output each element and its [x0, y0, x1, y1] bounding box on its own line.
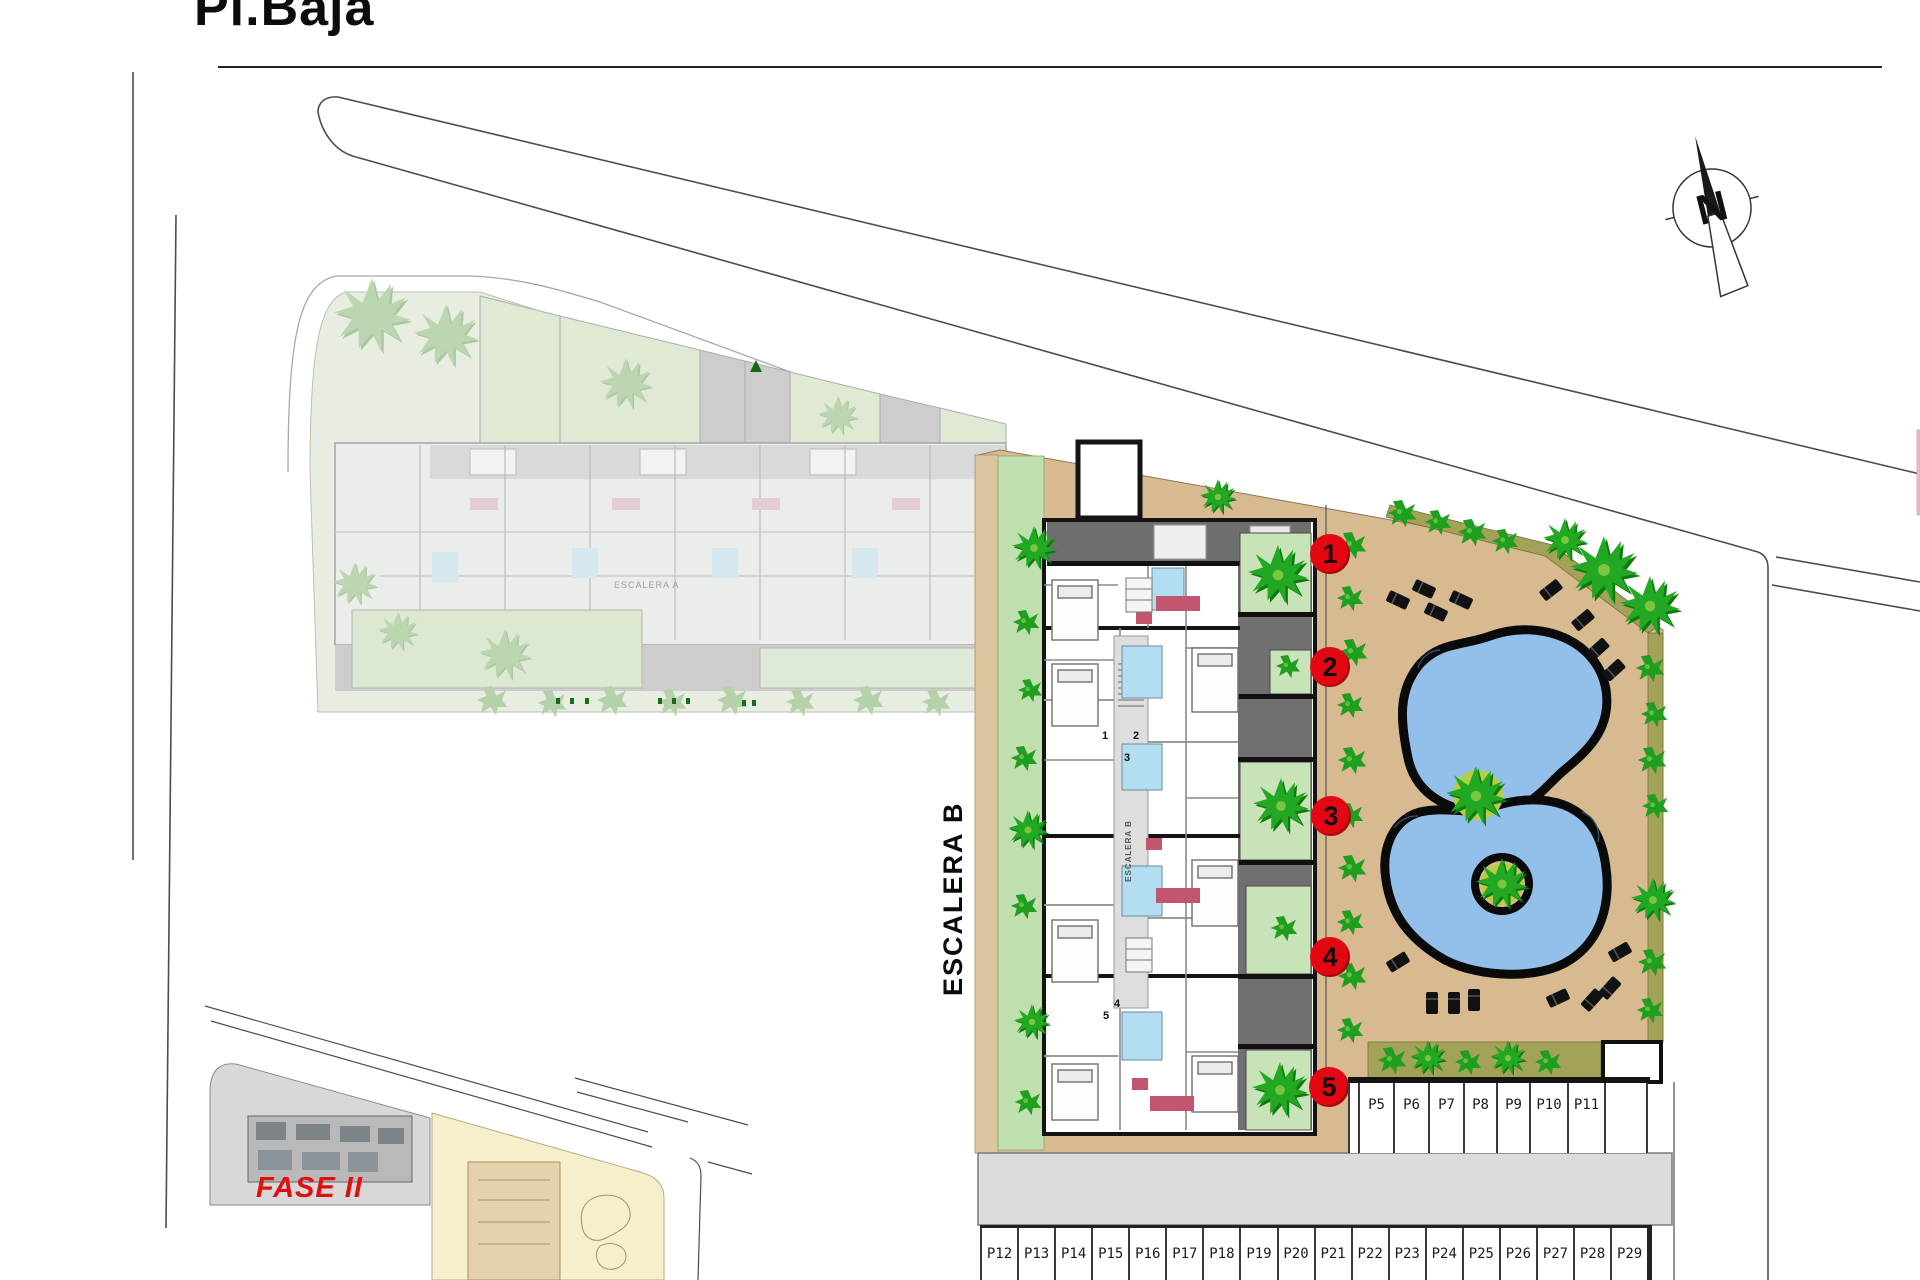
unit-marker-5[interactable]: 5 — [1309, 1067, 1349, 1107]
parking-stall: P16 — [1128, 1228, 1165, 1280]
parking-stall: P18 — [1202, 1228, 1239, 1280]
parking-row-lower: P12 P13 P14 P15 P16 P17 P18 P19 P20 P21 … — [980, 1225, 1652, 1280]
parking-stall — [1348, 1083, 1358, 1153]
faded-building — [335, 443, 1006, 691]
stair-b-label: ESCALERA B — [937, 846, 969, 996]
title-rule — [218, 66, 1882, 68]
parking-stall: P20 — [1277, 1228, 1314, 1280]
parking-stall: P5 — [1358, 1083, 1393, 1153]
parking-stall: P14 — [1054, 1228, 1091, 1280]
parking-stall: P21 — [1314, 1228, 1351, 1280]
parking-stall: P26 — [1499, 1228, 1536, 1280]
parking-stall: P19 — [1239, 1228, 1276, 1280]
unit-marker-4[interactable]: 4 — [1310, 937, 1350, 977]
parking-stall: P25 — [1462, 1228, 1499, 1280]
parking-stall: P15 — [1091, 1228, 1128, 1280]
page-title: Pl.Baja — [194, 0, 374, 38]
parking-stall: P9 — [1496, 1083, 1529, 1153]
compass-north-label: N — [1691, 181, 1732, 234]
north-compass: N — [1648, 125, 1780, 305]
plan-number-4: 4 — [1114, 998, 1120, 1010]
unit-marker-1[interactable]: 1 — [1310, 534, 1350, 574]
entrance-lobby — [1078, 442, 1140, 518]
parking-stall: P17 — [1165, 1228, 1202, 1280]
plan-number-5: 5 — [1103, 1010, 1109, 1022]
parking-stall: P28 — [1573, 1228, 1610, 1280]
minimap — [205, 1006, 752, 1280]
parking-stall — [1604, 1083, 1648, 1153]
unit-marker-3[interactable]: 3 — [1311, 796, 1351, 836]
parking-stall: P8 — [1463, 1083, 1496, 1153]
site-plan-canvas: N Pl.Baja ESCALERA B ESCALERA B ESCALERA… — [0, 0, 1920, 1280]
parking-stall: P22 — [1351, 1228, 1388, 1280]
parking-stall: P12 — [980, 1228, 1017, 1280]
stair-b-small-label: ESCALERA B — [1124, 820, 1134, 882]
parking-stall: P10 — [1529, 1083, 1567, 1153]
parking-stall: P11 — [1567, 1083, 1604, 1153]
parking-stall: P27 — [1536, 1228, 1573, 1280]
parking-stall: P24 — [1425, 1228, 1462, 1280]
plan-number-1: 1 — [1102, 730, 1108, 742]
side-path — [975, 455, 998, 1153]
pool-gate — [1603, 1042, 1661, 1082]
parking-stall: P29 — [1610, 1228, 1652, 1280]
unit-marker-2[interactable]: 2 — [1310, 647, 1350, 687]
parking-row-upper: P5 P6 P7 P8 P9 P10 P11 — [1348, 1083, 1648, 1153]
faded-parcel — [288, 276, 1008, 717]
parking-stall: P23 — [1388, 1228, 1425, 1280]
parking-stall: P6 — [1393, 1083, 1428, 1153]
phase-2-label: FASE II — [256, 1172, 363, 1205]
parking-stall: P13 — [1017, 1228, 1054, 1280]
lounger-icon — [1426, 992, 1438, 1014]
plan-number-2: 2 — [1133, 730, 1139, 742]
parking-stall: P7 — [1428, 1083, 1463, 1153]
access-road — [978, 1153, 1672, 1225]
stair-a-small-label: ESCALERA A — [614, 580, 724, 590]
plan-number-3: 3 — [1124, 752, 1130, 764]
lounger-icon — [1468, 989, 1480, 1011]
lounger-icon — [1448, 992, 1460, 1014]
